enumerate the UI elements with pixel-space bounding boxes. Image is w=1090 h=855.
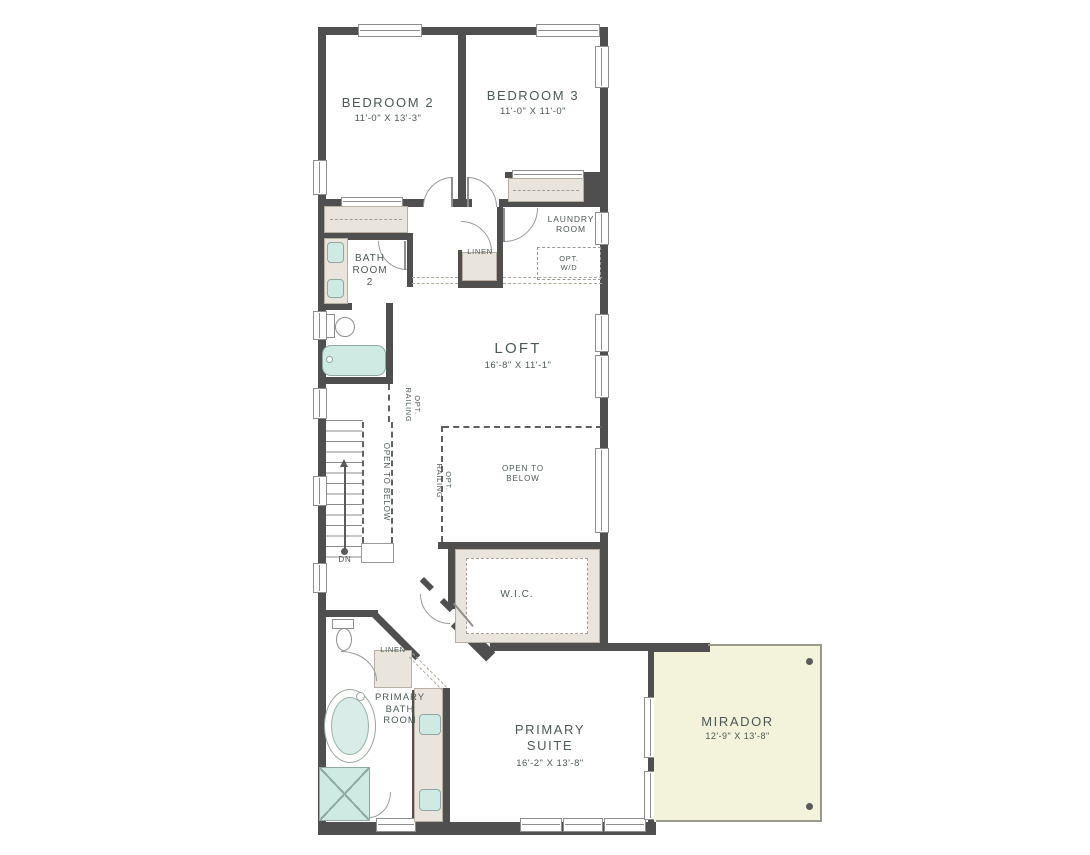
sink: [419, 789, 441, 811]
railing: [443, 426, 602, 428]
wall: [438, 542, 608, 549]
wall: [318, 610, 378, 617]
door-arc-bedroom3: [467, 177, 497, 207]
stair-direction-arrow: [340, 459, 348, 467]
toilet-tank: [326, 314, 335, 338]
deck-edge: [820, 645, 822, 822]
room-dims-bedroom2: 11'-0" x 13'-3": [318, 113, 458, 125]
deck-post: [806, 803, 813, 810]
wall: [458, 35, 466, 207]
room-label-primary-suite: PRIMARY SUITE: [495, 722, 605, 754]
room-label-bath2: BATH ROOM 2: [348, 253, 392, 290]
deck-edge: [656, 820, 822, 822]
wall: [318, 377, 393, 384]
door-jamb: [420, 577, 434, 591]
window: [313, 311, 327, 340]
door-arc-water-closet: [341, 651, 377, 681]
door-leaf: [503, 208, 505, 242]
window: [604, 818, 646, 832]
window: [520, 818, 562, 832]
window: [313, 388, 327, 419]
window: [313, 563, 327, 593]
linen-closet: [462, 252, 497, 281]
window: [595, 46, 609, 88]
door-leaf: [451, 177, 453, 207]
door-arc-laundry: [504, 208, 538, 242]
room-dims-bedroom3: 11'-0" x 11'-0": [466, 106, 600, 118]
room-dims-mirador: 12'-9" x 13'-8": [690, 731, 785, 742]
room-label-primary-bath: PRIMARY BATH ROOM: [374, 692, 426, 727]
window: [358, 24, 422, 37]
wall: [648, 643, 710, 652]
window: [536, 24, 600, 37]
window: [563, 818, 603, 832]
wall: [490, 643, 656, 651]
room-label-wic: W.I.C.: [490, 589, 544, 601]
sink: [327, 279, 344, 298]
wall: [443, 688, 450, 822]
tub-faucet: [326, 356, 333, 363]
room-label-laundry: LAUNDRY ROOM: [539, 214, 603, 235]
deck-edge: [708, 644, 822, 646]
label-opt-railing: OPT. RAILING: [384, 383, 422, 427]
floor-plan: BEDROOM 2 11'-0" x 13'-3" BEDROOM 3 11'-…: [0, 0, 1090, 855]
toilet-bowl: [336, 628, 352, 651]
door-leaf: [467, 177, 469, 207]
label-open-to-below-rail: OPEN TO BELOW: [365, 437, 391, 527]
window: [313, 160, 327, 195]
door-arc-primary-suite: [420, 594, 450, 624]
linen-closet: [374, 650, 412, 688]
stair-direction-line: [344, 466, 346, 551]
window: [595, 448, 609, 533]
sink: [327, 242, 344, 263]
label-down: DN: [333, 555, 357, 565]
wall: [458, 281, 503, 288]
shelf-dash: [513, 190, 579, 191]
soaking-tub-basin: [331, 697, 369, 755]
label-linen: LINEN: [464, 247, 496, 256]
window: [595, 355, 609, 398]
room-dims-primary-suite: 16'-2" x 13'-8": [495, 758, 605, 770]
cased-opening: [503, 277, 602, 284]
cased-opening: [409, 653, 447, 691]
chase: [584, 178, 603, 202]
door-arc-bedroom2: [423, 177, 453, 207]
label-opt-railing: OPT. RAILING: [415, 459, 453, 503]
toilet-bowl: [335, 317, 355, 337]
stair-landing: [361, 543, 394, 563]
shelf-dash: [330, 219, 402, 220]
room-dims-loft: 16'-8" x 11'-1": [466, 360, 570, 372]
deck-post: [806, 658, 813, 665]
room-label-loft: LOFT: [478, 340, 558, 358]
room-label-bedroom2: BEDROOM 2: [318, 95, 458, 111]
window: [595, 314, 609, 352]
stair-direction-dot: [341, 548, 348, 555]
room-label-bedroom3: BEDROOM 3: [466, 88, 600, 104]
label-opt-wd: OPT. W/D: [553, 254, 585, 272]
window: [376, 818, 416, 832]
tub-faucet: [356, 692, 365, 701]
door-arc-shower: [369, 792, 391, 818]
room-label-mirador: MIRADOR: [690, 714, 785, 730]
cased-opening: [412, 277, 458, 284]
wall: [386, 303, 393, 384]
wall: [318, 303, 352, 310]
door-leaf: [404, 241, 406, 270]
window: [313, 476, 327, 506]
shower: [319, 767, 370, 821]
label-linen: LINEN: [372, 645, 414, 654]
room-label-open-to-below: OPEN TO BELOW: [498, 464, 548, 484]
